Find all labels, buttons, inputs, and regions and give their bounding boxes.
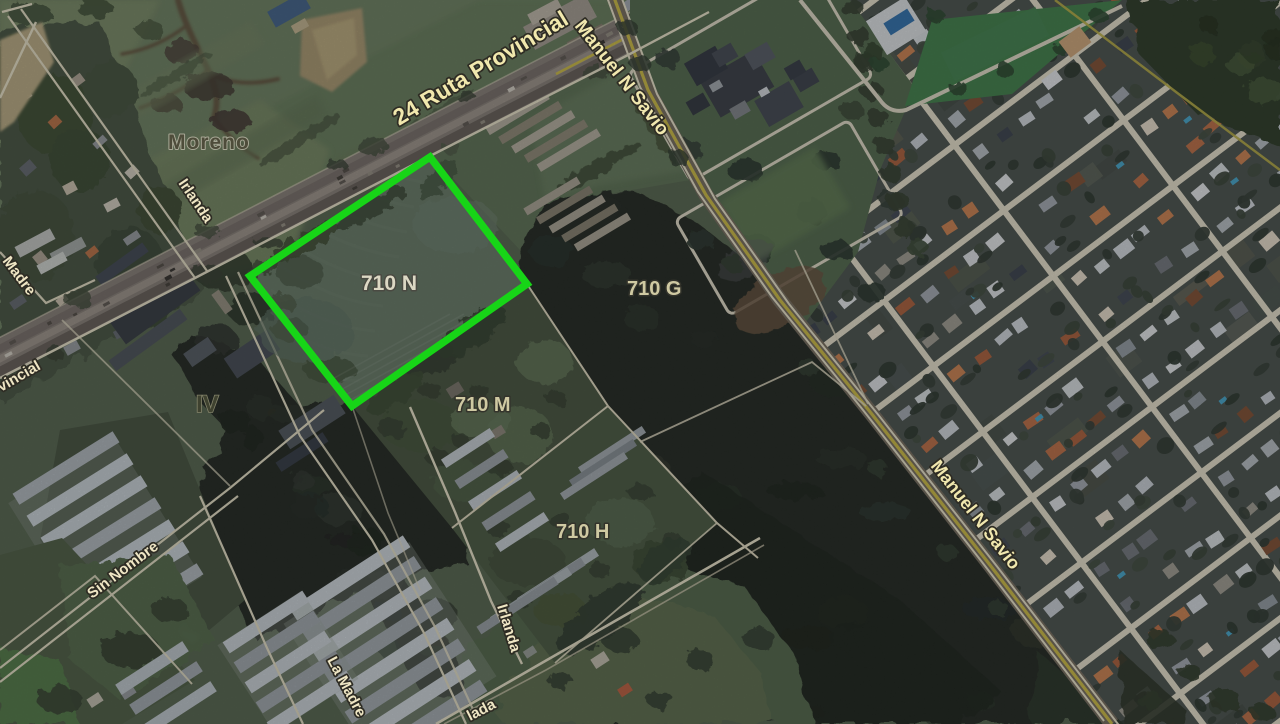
svg-text:710 G: 710 G xyxy=(627,278,681,300)
svg-text:IV: IV xyxy=(196,391,219,418)
svg-text:710 H: 710 H xyxy=(556,521,609,543)
svg-text:Moreno: Moreno xyxy=(168,131,250,154)
svg-text:710 N: 710 N xyxy=(361,272,417,295)
svg-text:710 M: 710 M xyxy=(455,394,511,416)
